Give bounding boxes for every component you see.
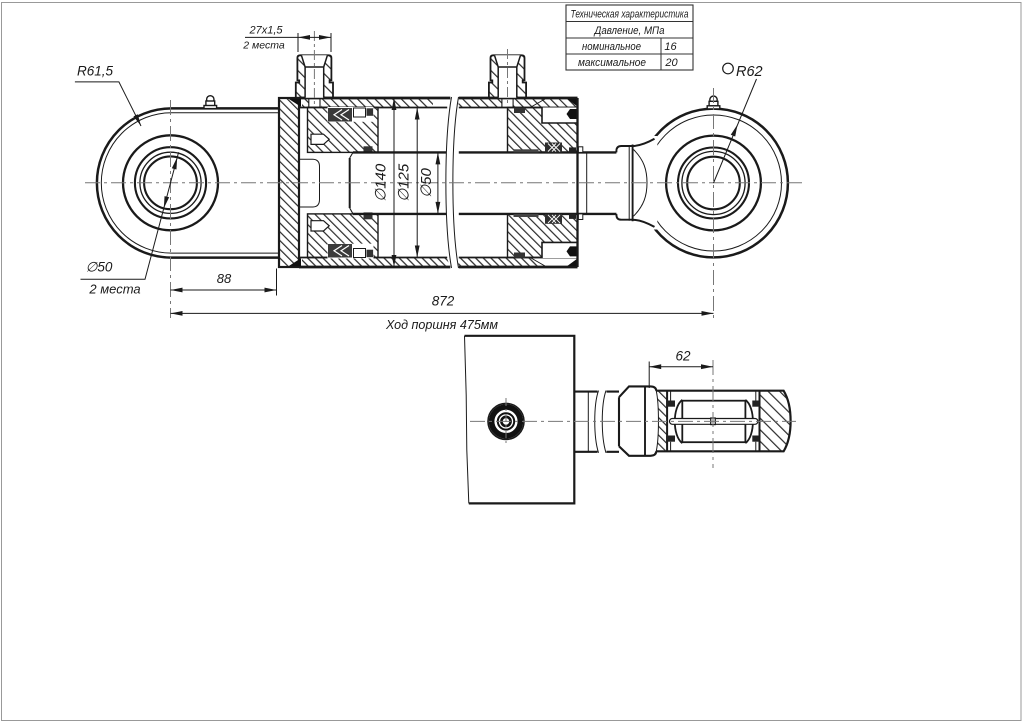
svg-text:∅50: ∅50 (418, 167, 435, 197)
svg-text:∅50: ∅50 (86, 260, 113, 275)
svg-text:88: 88 (217, 271, 232, 286)
svg-text:максимальное: максимальное (578, 57, 646, 69)
svg-text:27х1,5: 27х1,5 (248, 25, 283, 37)
svg-text:2 места: 2 места (88, 282, 140, 297)
svg-text:Техническая характеристика: Техническая характеристика (571, 9, 689, 21)
svg-text:R62: R62 (736, 64, 763, 80)
svg-text:Давление, МПа: Давление, МПа (593, 25, 665, 37)
svg-text:R61,5: R61,5 (77, 64, 114, 79)
svg-text:20: 20 (664, 57, 678, 69)
svg-text:872: 872 (432, 294, 455, 309)
svg-text:16: 16 (664, 41, 677, 53)
svg-text:2 места: 2 места (242, 40, 285, 52)
svg-text:∅140: ∅140 (373, 163, 390, 202)
svg-text:Ход поршня 475мм: Ход поршня 475мм (385, 317, 498, 332)
svg-text:номинальное: номинальное (582, 41, 641, 53)
svg-text:62: 62 (675, 349, 691, 364)
svg-text:∅125: ∅125 (396, 163, 413, 202)
